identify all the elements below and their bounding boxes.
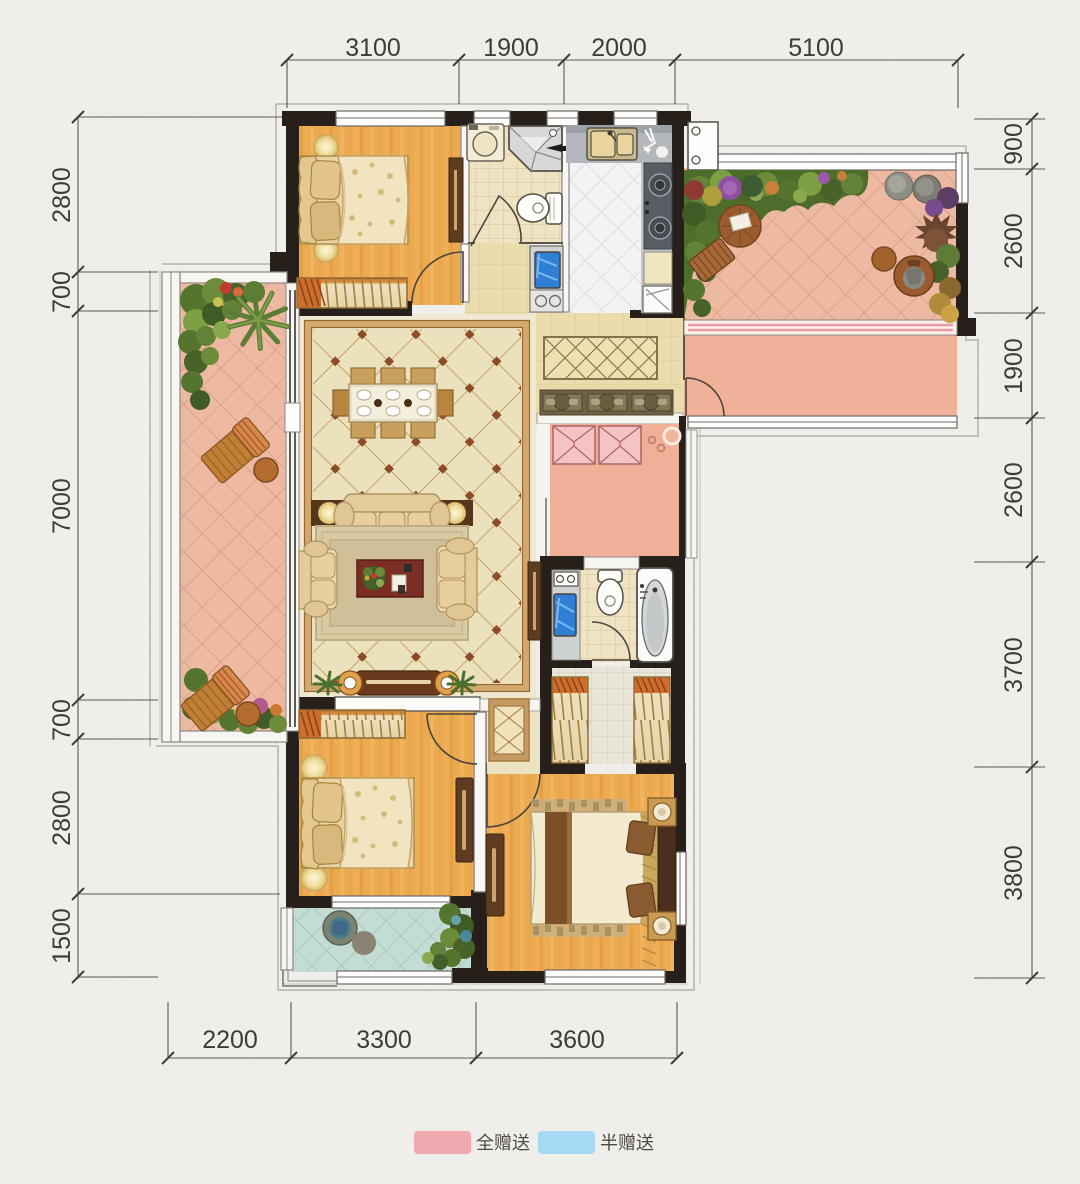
svg-text:2600: 2600 xyxy=(1000,462,1028,518)
svg-text:900: 900 xyxy=(1000,123,1028,165)
svg-text:3600: 3600 xyxy=(549,1026,605,1054)
svg-text:2600: 2600 xyxy=(1000,213,1028,269)
svg-text:2800: 2800 xyxy=(48,790,76,846)
svg-text:3300: 3300 xyxy=(356,1026,412,1054)
svg-text:3100: 3100 xyxy=(345,34,401,62)
svg-text:2800: 2800 xyxy=(48,167,76,223)
svg-text:700: 700 xyxy=(48,699,76,741)
svg-text:1900: 1900 xyxy=(483,34,539,62)
svg-text:1500: 1500 xyxy=(48,908,76,964)
svg-text:2000: 2000 xyxy=(591,34,647,62)
svg-text:700: 700 xyxy=(48,271,76,313)
svg-text:5100: 5100 xyxy=(788,34,844,62)
svg-text:1900: 1900 xyxy=(1000,338,1028,394)
svg-text:2200: 2200 xyxy=(202,1026,258,1054)
svg-text:半赠送: 半赠送 xyxy=(600,1133,654,1153)
svg-text:3700: 3700 xyxy=(1000,637,1028,693)
svg-text:3800: 3800 xyxy=(1000,845,1028,901)
svg-text:全赠送: 全赠送 xyxy=(476,1133,530,1153)
svg-text:7000: 7000 xyxy=(48,478,76,534)
